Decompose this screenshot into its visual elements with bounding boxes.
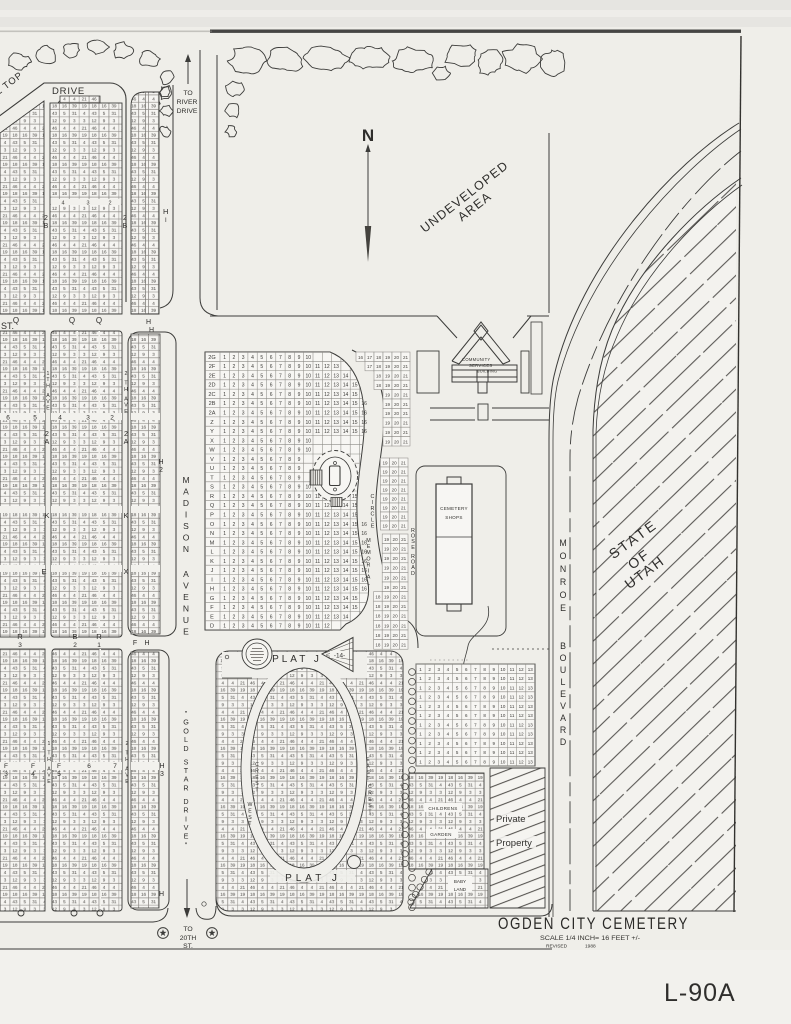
svg-text:9: 9 bbox=[298, 494, 301, 500]
svg-text:13: 13 bbox=[333, 615, 339, 621]
svg-text:20: 20 bbox=[392, 497, 398, 502]
svg-text:19: 19 bbox=[385, 402, 391, 407]
svg-text:10: 10 bbox=[306, 605, 312, 611]
svg-text:DRIVE: DRIVE bbox=[52, 86, 85, 97]
svg-text:12: 12 bbox=[519, 722, 525, 727]
svg-text:21: 21 bbox=[401, 515, 407, 520]
svg-text:8: 8 bbox=[288, 596, 291, 602]
svg-text:3: 3 bbox=[242, 373, 245, 379]
svg-text:11: 11 bbox=[510, 741, 515, 746]
svg-text:4: 4 bbox=[251, 392, 254, 398]
svg-text:21: 21 bbox=[403, 374, 409, 379]
svg-text:20: 20 bbox=[392, 461, 398, 466]
svg-text:CHILDRENS: CHILDRENS bbox=[428, 806, 457, 811]
svg-text:4: 4 bbox=[251, 540, 254, 546]
svg-text:A: A bbox=[124, 439, 129, 446]
svg-text:5: 5 bbox=[260, 401, 263, 407]
svg-text:V: V bbox=[47, 773, 51, 779]
svg-text:12: 12 bbox=[324, 550, 330, 556]
svg-text:9: 9 bbox=[298, 550, 301, 556]
svg-text:2G: 2G bbox=[208, 355, 215, 361]
svg-text:4: 4 bbox=[251, 383, 254, 389]
svg-text:13: 13 bbox=[528, 667, 534, 672]
svg-text:R: R bbox=[255, 768, 259, 774]
svg-text:19: 19 bbox=[384, 575, 390, 580]
svg-text:7: 7 bbox=[279, 364, 282, 370]
svg-text:2: 2 bbox=[44, 215, 48, 222]
svg-text:6: 6 bbox=[270, 587, 273, 593]
svg-text:10: 10 bbox=[306, 550, 312, 556]
svg-text:20: 20 bbox=[393, 604, 399, 609]
svg-text:7: 7 bbox=[279, 494, 282, 500]
svg-text:10: 10 bbox=[500, 713, 506, 718]
svg-text:21: 21 bbox=[401, 488, 407, 493]
svg-text:10: 10 bbox=[306, 438, 312, 444]
svg-text:1: 1 bbox=[223, 429, 226, 435]
svg-text:8: 8 bbox=[288, 373, 291, 379]
svg-text:8: 8 bbox=[288, 615, 291, 621]
svg-text:Private: Private bbox=[496, 814, 526, 825]
svg-text:2: 2 bbox=[233, 624, 236, 630]
svg-text:2C: 2C bbox=[208, 392, 215, 398]
svg-text:21: 21 bbox=[403, 421, 409, 426]
svg-text:2: 2 bbox=[233, 577, 236, 583]
svg-text:E: E bbox=[210, 615, 214, 621]
svg-text:V: V bbox=[560, 701, 566, 711]
svg-text:4: 4 bbox=[251, 355, 254, 361]
svg-text:3: 3 bbox=[242, 420, 245, 426]
svg-text:5: 5 bbox=[260, 438, 263, 444]
svg-text:3: 3 bbox=[242, 438, 245, 444]
svg-text:19: 19 bbox=[384, 556, 390, 561]
svg-text:8: 8 bbox=[288, 531, 291, 537]
svg-text:15: 15 bbox=[352, 513, 358, 519]
svg-text:D: D bbox=[183, 744, 188, 753]
svg-text:3: 3 bbox=[242, 448, 245, 454]
svg-text:4: 4 bbox=[251, 624, 254, 630]
svg-text:S: S bbox=[184, 757, 189, 766]
svg-text:21: 21 bbox=[401, 497, 407, 502]
svg-text:20: 20 bbox=[393, 537, 399, 542]
svg-text:20: 20 bbox=[393, 623, 399, 628]
svg-text:12: 12 bbox=[324, 429, 330, 435]
svg-text:12: 12 bbox=[519, 667, 525, 672]
svg-text:12: 12 bbox=[324, 568, 330, 574]
svg-text:4: 4 bbox=[251, 401, 254, 407]
svg-text:2: 2 bbox=[233, 392, 236, 398]
svg-text:R: R bbox=[560, 577, 566, 587]
svg-text:3: 3 bbox=[242, 475, 245, 481]
svg-text:11: 11 bbox=[315, 550, 320, 556]
svg-text:1: 1 bbox=[223, 513, 226, 519]
svg-text:5: 5 bbox=[260, 485, 263, 491]
svg-text:F: F bbox=[133, 640, 137, 647]
svg-text:19: 19 bbox=[382, 470, 388, 475]
svg-text:": " bbox=[185, 840, 188, 849]
svg-text:9: 9 bbox=[298, 466, 301, 472]
svg-text:16: 16 bbox=[361, 587, 367, 593]
svg-text:20: 20 bbox=[393, 585, 399, 590]
svg-text:15: 15 bbox=[352, 522, 358, 528]
svg-text:5: 5 bbox=[260, 559, 263, 565]
svg-text:3: 3 bbox=[242, 401, 245, 407]
svg-text:19: 19 bbox=[382, 515, 388, 520]
svg-text:C: C bbox=[368, 784, 372, 790]
svg-text:3: 3 bbox=[242, 559, 245, 565]
svg-text:4: 4 bbox=[251, 485, 254, 491]
svg-text:3: 3 bbox=[242, 605, 245, 611]
svg-text:8: 8 bbox=[288, 624, 291, 630]
svg-text:20: 20 bbox=[393, 595, 399, 600]
svg-text:9: 9 bbox=[298, 503, 301, 509]
svg-text:10: 10 bbox=[306, 485, 312, 491]
svg-text:15: 15 bbox=[352, 494, 358, 500]
svg-text:6: 6 bbox=[270, 513, 273, 519]
svg-text:11: 11 bbox=[510, 704, 515, 709]
svg-text:O: O bbox=[210, 522, 215, 528]
svg-text:V: V bbox=[125, 773, 129, 779]
svg-text:H: H bbox=[210, 587, 214, 593]
svg-text:16: 16 bbox=[361, 429, 367, 435]
svg-text:13: 13 bbox=[333, 531, 339, 537]
svg-text:16: 16 bbox=[361, 522, 367, 528]
svg-text:2E: 2E bbox=[209, 373, 216, 379]
svg-text:10: 10 bbox=[500, 676, 506, 681]
svg-text:12: 12 bbox=[519, 685, 525, 690]
svg-text:E: E bbox=[411, 545, 415, 551]
svg-text:6: 6 bbox=[270, 355, 273, 361]
svg-text:11: 11 bbox=[315, 577, 320, 583]
svg-text:11: 11 bbox=[315, 429, 320, 435]
svg-text:18: 18 bbox=[375, 643, 381, 648]
svg-text:19: 19 bbox=[384, 604, 390, 609]
svg-text:12: 12 bbox=[324, 559, 330, 565]
svg-text:A: A bbox=[125, 766, 129, 772]
svg-text:14: 14 bbox=[343, 531, 349, 537]
svg-text:1: 1 bbox=[223, 596, 226, 602]
svg-text:J: J bbox=[211, 568, 214, 574]
svg-text:11: 11 bbox=[315, 522, 320, 528]
svg-text:L-90A: L-90A bbox=[664, 979, 736, 1007]
svg-text:5: 5 bbox=[260, 531, 263, 537]
svg-text:6: 6 bbox=[270, 494, 273, 500]
svg-text:4: 4 bbox=[251, 513, 254, 519]
svg-text:12: 12 bbox=[519, 695, 525, 700]
svg-text:20: 20 bbox=[392, 506, 398, 511]
svg-text:9: 9 bbox=[298, 420, 301, 426]
svg-text:7: 7 bbox=[279, 624, 282, 630]
svg-text:11: 11 bbox=[315, 364, 320, 370]
svg-text:14: 14 bbox=[343, 605, 349, 611]
svg-text:4: 4 bbox=[251, 531, 254, 537]
svg-text:11: 11 bbox=[510, 750, 515, 755]
svg-text:V: V bbox=[184, 823, 189, 832]
svg-text:11: 11 bbox=[510, 676, 515, 681]
svg-text:5: 5 bbox=[260, 411, 263, 417]
svg-text:7: 7 bbox=[279, 522, 282, 528]
svg-text:D: D bbox=[210, 624, 214, 630]
svg-text:9: 9 bbox=[298, 364, 301, 370]
svg-text:19: 19 bbox=[384, 595, 390, 600]
svg-text:5: 5 bbox=[260, 475, 263, 481]
svg-text:E: E bbox=[47, 779, 51, 785]
svg-text:12: 12 bbox=[324, 420, 330, 426]
svg-text:2: 2 bbox=[233, 531, 236, 537]
svg-text:14: 14 bbox=[343, 615, 349, 621]
svg-text:S: S bbox=[255, 781, 259, 787]
svg-text:6: 6 bbox=[270, 559, 273, 565]
svg-text:19: 19 bbox=[382, 461, 388, 466]
svg-text:4: 4 bbox=[251, 522, 254, 528]
svg-text:2: 2 bbox=[125, 371, 128, 377]
svg-text:1: 1 bbox=[223, 568, 226, 574]
svg-text:1: 1 bbox=[223, 522, 226, 528]
svg-text:13: 13 bbox=[333, 522, 339, 528]
svg-text:20: 20 bbox=[393, 575, 399, 580]
svg-text:19: 19 bbox=[385, 430, 391, 435]
svg-text:14: 14 bbox=[343, 559, 349, 565]
svg-text:20: 20 bbox=[392, 515, 398, 520]
svg-text:9: 9 bbox=[298, 540, 301, 546]
svg-text:15: 15 bbox=[352, 568, 358, 574]
svg-text:11: 11 bbox=[315, 531, 320, 537]
svg-text:9: 9 bbox=[298, 513, 301, 519]
svg-text:9: 9 bbox=[298, 383, 301, 389]
svg-text:10: 10 bbox=[500, 685, 506, 690]
svg-text:2: 2 bbox=[233, 550, 236, 556]
svg-text:3: 3 bbox=[242, 457, 245, 463]
svg-text:9: 9 bbox=[298, 411, 301, 417]
svg-text:5: 5 bbox=[57, 771, 61, 778]
svg-text:2: 2 bbox=[233, 383, 236, 389]
svg-text:3: 3 bbox=[242, 568, 245, 574]
svg-text:V: V bbox=[210, 457, 214, 463]
svg-text:14: 14 bbox=[343, 373, 349, 379]
svg-text:Q: Q bbox=[210, 503, 215, 509]
svg-text:N: N bbox=[183, 604, 189, 614]
svg-text:1: 1 bbox=[223, 540, 226, 546]
svg-text:14: 14 bbox=[343, 596, 349, 602]
svg-text:TO: TO bbox=[183, 926, 192, 933]
svg-text:1: 1 bbox=[223, 457, 226, 463]
svg-text:2: 2 bbox=[110, 415, 114, 422]
svg-text:2: 2 bbox=[233, 494, 236, 500]
svg-text:2: 2 bbox=[233, 596, 236, 602]
svg-text:7: 7 bbox=[279, 475, 282, 481]
svg-text:12: 12 bbox=[324, 364, 330, 370]
svg-text:F: F bbox=[57, 763, 61, 770]
svg-text:3: 3 bbox=[86, 415, 90, 422]
svg-text:12: 12 bbox=[324, 540, 330, 546]
svg-text:8: 8 bbox=[288, 411, 291, 417]
svg-text:13: 13 bbox=[333, 392, 339, 398]
svg-text:2: 2 bbox=[233, 457, 236, 463]
svg-text:-14-: -14- bbox=[334, 653, 345, 660]
svg-text:1: 1 bbox=[223, 559, 226, 565]
svg-text:A: A bbox=[367, 575, 371, 581]
svg-text:12: 12 bbox=[324, 531, 330, 537]
svg-text:20: 20 bbox=[394, 383, 400, 388]
svg-text:11: 11 bbox=[315, 420, 320, 426]
svg-text:6: 6 bbox=[270, 420, 273, 426]
svg-text:9: 9 bbox=[298, 448, 301, 454]
svg-text:4: 4 bbox=[251, 596, 254, 602]
svg-text:7: 7 bbox=[279, 550, 282, 556]
svg-text:13: 13 bbox=[333, 364, 339, 370]
svg-text:7: 7 bbox=[113, 763, 117, 770]
svg-text:8: 8 bbox=[288, 438, 291, 444]
svg-text:21: 21 bbox=[403, 364, 409, 369]
svg-text:10: 10 bbox=[500, 750, 506, 755]
svg-text:3: 3 bbox=[242, 531, 245, 537]
svg-text:13: 13 bbox=[333, 373, 339, 379]
svg-text:2: 2 bbox=[45, 431, 49, 438]
svg-text:21: 21 bbox=[403, 402, 409, 407]
svg-text:6: 6 bbox=[6, 415, 10, 422]
svg-text:9: 9 bbox=[298, 401, 301, 407]
svg-text:7: 7 bbox=[279, 485, 282, 491]
svg-text:4: 4 bbox=[251, 420, 254, 426]
svg-text:O: O bbox=[560, 653, 567, 663]
svg-text:1: 1 bbox=[223, 531, 226, 537]
svg-text:6: 6 bbox=[270, 448, 273, 454]
svg-text:12: 12 bbox=[519, 704, 525, 709]
svg-text:8: 8 bbox=[288, 587, 291, 593]
svg-text:10: 10 bbox=[306, 531, 312, 537]
svg-text:SERVICES: SERVICES bbox=[469, 363, 493, 368]
svg-text:M: M bbox=[366, 538, 371, 544]
svg-text:10: 10 bbox=[306, 513, 312, 519]
svg-text:11: 11 bbox=[510, 713, 515, 718]
svg-text:E: E bbox=[183, 592, 189, 602]
svg-text:16: 16 bbox=[361, 411, 367, 417]
svg-text:15: 15 bbox=[352, 420, 358, 426]
svg-text:9: 9 bbox=[298, 429, 301, 435]
svg-text:D: D bbox=[411, 571, 415, 577]
svg-text:SHOPS: SHOPS bbox=[445, 515, 463, 520]
svg-text:7: 7 bbox=[279, 559, 282, 565]
svg-text:19: 19 bbox=[384, 623, 390, 628]
svg-text:13: 13 bbox=[333, 401, 339, 407]
svg-text:13: 13 bbox=[333, 596, 339, 602]
svg-text:4: 4 bbox=[251, 411, 254, 417]
svg-text:17: 17 bbox=[367, 364, 373, 369]
svg-text:18: 18 bbox=[375, 623, 381, 628]
svg-text:14: 14 bbox=[343, 577, 349, 583]
svg-text:U: U bbox=[210, 466, 214, 472]
svg-text:20: 20 bbox=[393, 547, 399, 552]
svg-text:A: A bbox=[560, 713, 566, 723]
svg-text:12: 12 bbox=[324, 587, 330, 593]
svg-text:11: 11 bbox=[510, 695, 515, 700]
svg-text:E: E bbox=[371, 524, 375, 530]
svg-text:PLAT J: PLAT J bbox=[285, 873, 341, 884]
svg-text:M: M bbox=[559, 538, 566, 548]
svg-text:2: 2 bbox=[73, 642, 77, 649]
svg-text:D: D bbox=[560, 737, 566, 747]
svg-text:OGDEN CITY CEMETERY: OGDEN CITY CEMETERY bbox=[498, 914, 689, 933]
svg-text:16: 16 bbox=[361, 531, 367, 537]
svg-text:11: 11 bbox=[315, 605, 320, 611]
svg-text:13: 13 bbox=[528, 722, 534, 727]
svg-text:8: 8 bbox=[288, 466, 291, 472]
svg-text:9: 9 bbox=[298, 615, 301, 621]
svg-text:10: 10 bbox=[500, 667, 506, 672]
svg-text:10: 10 bbox=[500, 732, 506, 737]
svg-text:2: 2 bbox=[124, 431, 128, 438]
svg-text:7: 7 bbox=[279, 615, 282, 621]
svg-text:5: 5 bbox=[260, 615, 263, 621]
svg-text:13: 13 bbox=[333, 559, 339, 565]
svg-text:R: R bbox=[367, 562, 371, 568]
svg-text:12: 12 bbox=[324, 503, 330, 509]
svg-text:6: 6 bbox=[270, 568, 273, 574]
svg-text:11: 11 bbox=[315, 401, 320, 407]
svg-text:8: 8 bbox=[288, 355, 291, 361]
svg-text:GARDEN: GARDEN bbox=[430, 832, 451, 837]
svg-text:11: 11 bbox=[510, 760, 515, 765]
svg-text:5: 5 bbox=[260, 522, 263, 528]
svg-text:18: 18 bbox=[375, 604, 381, 609]
svg-text:6: 6 bbox=[270, 531, 273, 537]
svg-text:7: 7 bbox=[279, 448, 282, 454]
svg-text:2: 2 bbox=[233, 503, 236, 509]
svg-text:R: R bbox=[183, 783, 188, 792]
svg-text:H: H bbox=[47, 757, 51, 763]
svg-text:2D: 2D bbox=[208, 383, 215, 389]
svg-text:8: 8 bbox=[288, 475, 291, 481]
svg-text:4: 4 bbox=[31, 771, 35, 778]
svg-text:6: 6 bbox=[270, 383, 273, 389]
svg-text:6: 6 bbox=[270, 503, 273, 509]
svg-text:5: 5 bbox=[260, 577, 263, 583]
svg-text:12: 12 bbox=[324, 401, 330, 407]
svg-text:4: 4 bbox=[251, 429, 254, 435]
svg-text:21: 21 bbox=[403, 355, 409, 360]
svg-text:5: 5 bbox=[260, 605, 263, 611]
svg-text:6: 6 bbox=[270, 615, 273, 621]
svg-text:5: 5 bbox=[260, 383, 263, 389]
svg-text:8: 8 bbox=[288, 494, 291, 500]
svg-text:2: 2 bbox=[233, 411, 236, 417]
svg-text:9: 9 bbox=[298, 475, 301, 481]
svg-text:K: K bbox=[210, 559, 214, 565]
svg-text:19: 19 bbox=[385, 392, 391, 397]
svg-text:15: 15 bbox=[352, 596, 358, 602]
svg-text:8: 8 bbox=[288, 559, 291, 565]
svg-text:6: 6 bbox=[270, 373, 273, 379]
svg-text:7: 7 bbox=[279, 577, 282, 583]
svg-text:10: 10 bbox=[306, 559, 312, 565]
svg-text:1: 1 bbox=[223, 373, 226, 379]
svg-text:4: 4 bbox=[251, 494, 254, 500]
svg-text:7: 7 bbox=[279, 438, 282, 444]
svg-text:20: 20 bbox=[393, 556, 399, 561]
svg-text:Q: Q bbox=[96, 316, 102, 325]
svg-text:U: U bbox=[560, 665, 566, 675]
svg-text:9: 9 bbox=[298, 605, 301, 611]
svg-text:3: 3 bbox=[242, 522, 245, 528]
svg-text:6: 6 bbox=[270, 596, 273, 602]
svg-text:15: 15 bbox=[352, 531, 358, 537]
svg-text:6: 6 bbox=[270, 485, 273, 491]
svg-text:L: L bbox=[210, 550, 213, 556]
svg-text:R: R bbox=[368, 790, 372, 796]
svg-text:15: 15 bbox=[352, 401, 358, 407]
svg-text:L: L bbox=[184, 735, 188, 744]
svg-text:U: U bbox=[183, 615, 189, 625]
svg-text:D: D bbox=[183, 797, 188, 806]
